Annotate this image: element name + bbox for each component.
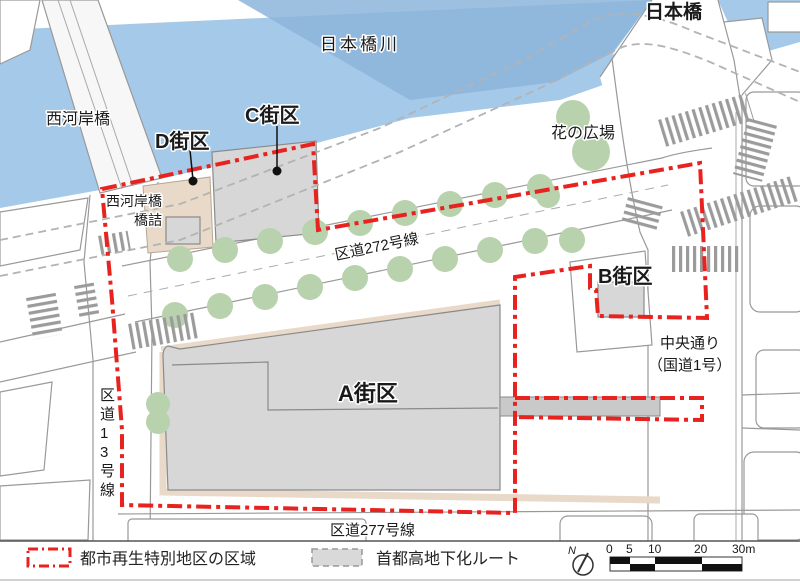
north-label: N bbox=[568, 545, 576, 557]
legend-district-label: 都市再生特別地区の区域 bbox=[80, 550, 256, 568]
map-canvas: 日本橋川 日本橋 西河岸橋 D街区 C街区 花の広場 西河岸橋 橋詰 区道272… bbox=[0, 0, 800, 583]
label-block-d: D街区 bbox=[155, 129, 209, 153]
label-river: 日本橋川 bbox=[320, 35, 400, 54]
scale-tick-10: 10 bbox=[648, 542, 662, 556]
label-road-13: 区道13号線 bbox=[100, 387, 115, 499]
label-block-b: B街区 bbox=[598, 264, 652, 288]
label-hashizume-2: 橋詰 bbox=[134, 212, 162, 228]
label-block-c: C街区 bbox=[245, 103, 299, 127]
scale-tick-20: 20 bbox=[694, 542, 708, 556]
site-plan-map: 日本橋川 日本橋 西河岸橋 D街区 C街区 花の広場 西河岸橋 橋詰 区道272… bbox=[0, 0, 800, 583]
legend-route-swatch bbox=[312, 549, 362, 566]
scale-tick-5: 5 bbox=[626, 542, 633, 556]
scale-tick-30m: 30m bbox=[732, 542, 755, 556]
label-hana-plaza: 花の広場 bbox=[551, 124, 615, 142]
block-a-building bbox=[163, 305, 500, 490]
scale-tick-0: 0 bbox=[606, 542, 613, 556]
label-hashizume-1: 西河岸橋 bbox=[106, 193, 162, 209]
label-nihonbashi-bridge: 日本橋 bbox=[645, 0, 703, 23]
block-d-building bbox=[166, 217, 200, 244]
label-road-277: 区道277号線 bbox=[330, 522, 415, 539]
label-nishikashi-bridge: 西河岸橋 bbox=[46, 110, 110, 128]
legend-route-label: 首都高地下化ルート bbox=[376, 550, 520, 568]
label-chuo-dori: 中央通り bbox=[660, 335, 720, 352]
legend: 都市再生特別地区の区域 首都高地下化ルート N 0 5 10 20 30m bbox=[0, 541, 800, 583]
label-chuo-dori-sub: （国道1号） bbox=[648, 357, 731, 374]
label-block-a: A街区 bbox=[338, 381, 398, 406]
